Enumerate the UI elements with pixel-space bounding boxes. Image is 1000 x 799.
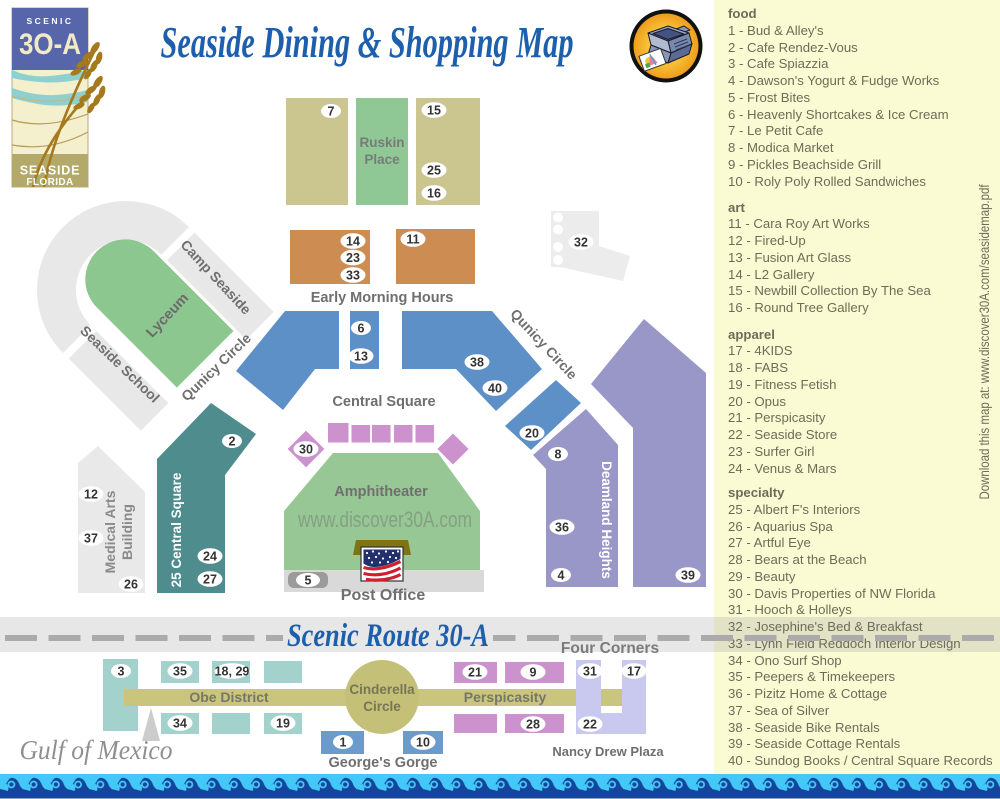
- svg-text:SEASIDE: SEASIDE: [20, 164, 80, 178]
- svg-text:26: 26: [124, 578, 138, 592]
- svg-text:George's Gorge: George's Gorge: [328, 755, 437, 771]
- svg-text:15: 15: [427, 104, 441, 118]
- svg-text:2: 2: [229, 435, 236, 449]
- svg-text:22: 22: [583, 718, 597, 732]
- svg-text:FLORIDA: FLORIDA: [26, 177, 73, 188]
- svg-text:Seaside Dining & Shopping Map: Seaside Dining & Shopping Map: [161, 18, 574, 67]
- svg-text:33: 33: [346, 269, 360, 283]
- svg-text:4: 4: [558, 569, 565, 583]
- svg-text:Place: Place: [364, 152, 400, 167]
- svg-text:Early Morning Hours: Early Morning Hours: [311, 290, 454, 306]
- svg-text:18, 29: 18, 29: [215, 665, 250, 679]
- svg-text:Perspicasity: Perspicasity: [464, 689, 547, 705]
- svg-text:Obe District: Obe District: [189, 689, 269, 705]
- svg-text:SCENIC: SCENIC: [26, 16, 73, 26]
- svg-text:14: 14: [346, 235, 360, 249]
- svg-text:Amphitheater: Amphitheater: [334, 484, 428, 500]
- svg-text:10: 10: [416, 736, 430, 750]
- svg-text:39: 39: [681, 569, 695, 583]
- svg-text:32: 32: [574, 236, 588, 250]
- svg-text:12: 12: [84, 488, 98, 502]
- svg-text:37: 37: [84, 532, 98, 546]
- svg-text:6: 6: [358, 322, 365, 336]
- svg-text:21: 21: [468, 666, 482, 680]
- svg-text:Building: Building: [119, 504, 135, 560]
- svg-text:Central Square: Central Square: [332, 394, 435, 410]
- svg-text:Circle: Circle: [363, 699, 401, 714]
- svg-text:8: 8: [555, 448, 562, 462]
- svg-text:Scenic Route 30-A: Scenic Route 30-A: [287, 618, 489, 654]
- svg-text:24: 24: [203, 550, 217, 564]
- svg-text:Four Corners: Four Corners: [561, 640, 659, 657]
- svg-text:5: 5: [305, 574, 312, 588]
- svg-text:40: 40: [488, 382, 502, 396]
- svg-text:38: 38: [470, 356, 484, 370]
- svg-text:Deamland Heights: Deamland Heights: [599, 461, 614, 579]
- svg-text:Download this map at: www.disc: Download this map at: www.discover30A.co…: [977, 184, 992, 499]
- svg-text:3: 3: [118, 665, 125, 679]
- svg-text:30: 30: [299, 443, 313, 457]
- svg-text:31: 31: [583, 665, 597, 679]
- svg-text:www.discover30A.com: www.discover30A.com: [297, 507, 472, 532]
- svg-text:Nancy Drew Plaza: Nancy Drew Plaza: [552, 744, 664, 759]
- svg-text:19: 19: [276, 717, 290, 731]
- svg-text:3O-A: 3O-A: [19, 28, 81, 61]
- svg-text:Cinderella: Cinderella: [349, 682, 415, 697]
- svg-text:Ruskin: Ruskin: [359, 135, 404, 150]
- svg-text:28: 28: [526, 718, 540, 732]
- svg-text:11: 11: [406, 233, 419, 247]
- svg-text:Post Office: Post Office: [341, 587, 426, 604]
- svg-text:25 Central Square: 25 Central Square: [169, 472, 184, 587]
- svg-text:35: 35: [173, 665, 187, 679]
- svg-text:7: 7: [328, 105, 335, 119]
- svg-text:16: 16: [427, 187, 441, 201]
- svg-text:27: 27: [203, 573, 217, 587]
- svg-text:Medical Arts: Medical Arts: [102, 490, 118, 573]
- svg-text:13: 13: [354, 350, 368, 364]
- svg-text:9: 9: [530, 666, 537, 680]
- svg-text:1: 1: [340, 736, 347, 750]
- svg-text:25: 25: [427, 164, 441, 178]
- svg-text:23: 23: [346, 251, 360, 265]
- svg-text:34: 34: [173, 717, 187, 731]
- svg-text:Gulf of Mexico: Gulf of Mexico: [20, 735, 173, 765]
- svg-text:17: 17: [627, 665, 641, 679]
- svg-text:36: 36: [555, 521, 569, 535]
- svg-text:20: 20: [525, 427, 539, 441]
